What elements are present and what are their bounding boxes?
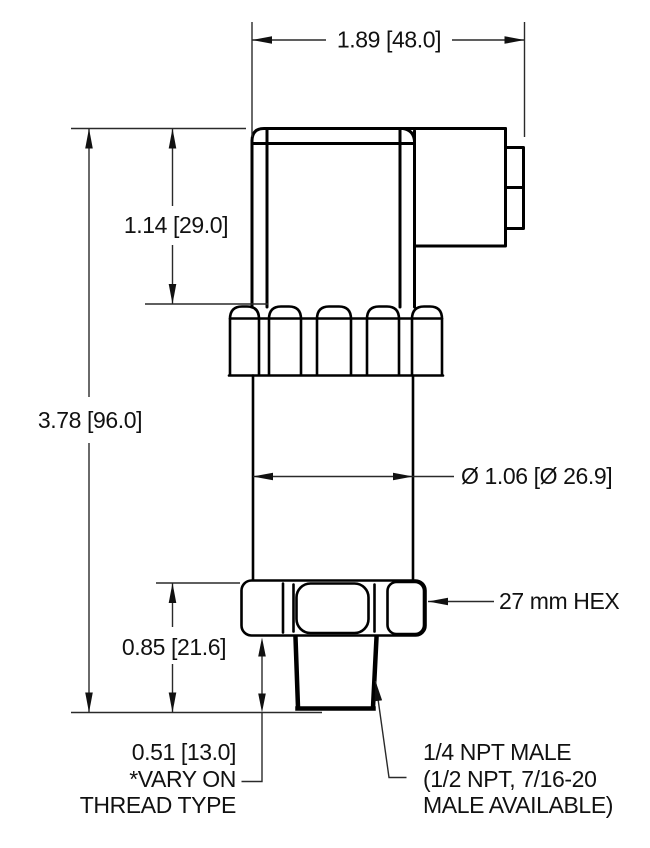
knurl-bump-3 [317, 307, 351, 376]
dim-lower-height-arrow-top [169, 583, 177, 603]
dim-thread-length-label: 0.51 [13.0] [132, 739, 236, 765]
housing-top-right-corner [403, 129, 415, 142]
electrical-connector [415, 129, 524, 247]
port-type-line3: MALE AVAILABLE) [423, 792, 613, 818]
hex-nut [242, 581, 426, 636]
drawing-canvas: 1.89 [48.0] 1.14 [29.0] 3.78 [96.0] 0.85… [0, 0, 650, 848]
dim-lower-height: 0.85 [21.6] [122, 583, 240, 713]
hex-callout-arrow [428, 598, 448, 606]
dim-upper-height: 1.14 [29.0] [71, 129, 268, 305]
callout-hex-size: 27 mm HEX [428, 588, 619, 614]
knurl-bump-5 [412, 307, 442, 376]
dim-lower-height-label: 0.85 [21.6] [122, 634, 226, 660]
dim-upper-height-label: 1.14 [29.0] [124, 212, 228, 238]
dim-thread-length-arrow-top [258, 638, 266, 657]
knurl-bump-1 [230, 307, 259, 376]
transducer-dimension-drawing: 1.89 [48.0] 1.14 [29.0] 3.78 [96.0] 0.85… [0, 0, 650, 848]
hex-center-facet [297, 584, 369, 634]
dim-overall-height-arrow-top [85, 129, 93, 149]
port-type-line2: (1/2 NPT, 7/16-20 [423, 766, 596, 792]
hex-size-label: 27 mm HEX [499, 588, 619, 614]
dim-top-width-label: 1.89 [48.0] [337, 27, 441, 53]
stud-left-thread [296, 638, 299, 708]
dim-overall-height-arrow-bottom [85, 693, 93, 713]
knurl-bump-4 [367, 307, 399, 376]
dim-top-width-arrow-left [252, 36, 272, 44]
dim-upper-height-arrow-bottom [169, 284, 177, 304]
dim-body-diameter-label: Ø 1.06 [Ø 26.9] [461, 463, 612, 489]
port-type-line1: 1/4 NPT MALE [423, 739, 571, 765]
knurled-nut [229, 307, 443, 376]
transducer-outline [229, 129, 524, 709]
hex-outer [242, 581, 426, 636]
housing-top-edge [252, 129, 506, 142]
dimensions: 1.89 [48.0] 1.14 [29.0] 3.78 [96.0] 0.85… [38, 22, 620, 818]
dim-body-diameter: Ø 1.06 [Ø 26.9] [253, 463, 612, 489]
dim-top-width: 1.89 [48.0] [252, 22, 525, 137]
thread-note-leader [242, 713, 263, 782]
connector-body [415, 129, 506, 247]
knurl-bump-2 [269, 307, 301, 376]
dim-upper-height-arrow-top [169, 129, 177, 149]
port-callout-arrow [375, 681, 383, 701]
dim-overall-height-label: 3.78 [96.0] [38, 407, 142, 433]
thread-note-line2: THREAD TYPE [80, 792, 236, 818]
dim-top-width-arrow-right [505, 36, 525, 44]
dim-body-diameter-arrow-right [393, 473, 413, 481]
threaded-stud [296, 638, 377, 709]
upper-housing [252, 129, 506, 308]
dim-body-diameter-arrow-left [253, 473, 273, 481]
callout-port-type: 1/4 NPT MALE (1/2 NPT, 7/16-20 MALE AVAI… [375, 681, 614, 818]
thread-note-line1: *VARY ON [129, 766, 236, 792]
dim-thread-length-arrow-bottom [258, 694, 266, 713]
connector-terminal-tabs [506, 148, 524, 229]
hex-right-facet [388, 582, 425, 634]
dim-lower-height-arrow-bottom [169, 693, 177, 713]
body-cylinder [253, 376, 413, 581]
